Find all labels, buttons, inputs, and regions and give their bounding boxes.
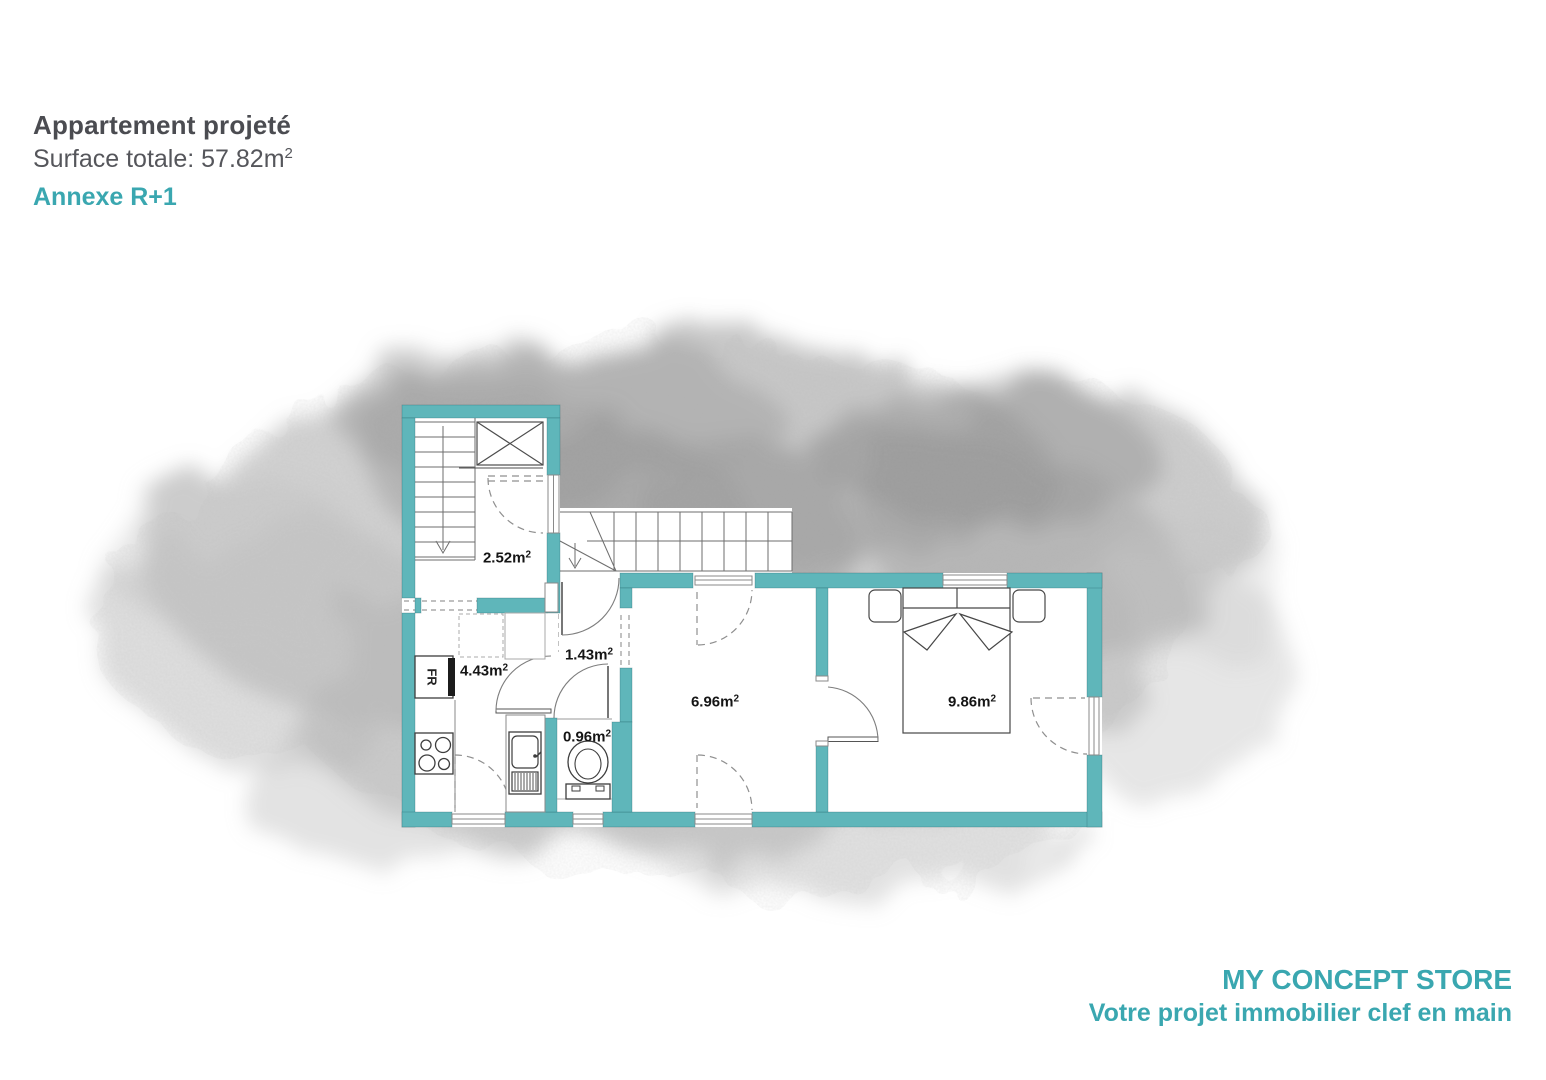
hall-casing-lower [545, 614, 558, 655]
wall-bottom-1 [402, 812, 452, 827]
wall-top-2 [755, 573, 943, 588]
fridge-door [448, 658, 455, 696]
bedroom-right-door-frame [1089, 697, 1099, 755]
fridge-label: FR [425, 668, 440, 686]
tower-wall-bottom-stub [415, 598, 421, 613]
wc-wall-left [545, 718, 557, 812]
wall-left [402, 613, 415, 827]
brand-name: MY CONCEPT STORE [1089, 962, 1512, 997]
wall-right-lower [1087, 755, 1102, 827]
fridge: FR [415, 656, 455, 698]
partition-door-cap-bottom [816, 741, 828, 746]
room-label-wc: 0.96m2 [563, 729, 611, 746]
kitchen-window [452, 814, 505, 824]
bedroom-window [943, 575, 1007, 585]
room-label-bedroom: 9.86m2 [948, 694, 996, 711]
room-top-doorway [695, 576, 752, 585]
sink-drainer [512, 772, 538, 791]
wall-bottom-3 [603, 812, 695, 827]
floor-plan-page: { "header": { "title": "Appartement proj… [0, 0, 1546, 1080]
surface-total: Surface totale: 57.82m2 [33, 142, 293, 180]
room-label-kitchen: 4.43m2 [460, 663, 508, 680]
wc-wall-right [612, 722, 632, 812]
tower-wall-bottom [477, 598, 547, 613]
wall-top-3 [1007, 573, 1102, 588]
plan-header: Appartement projeté Surface totale: 57.8… [33, 108, 293, 214]
toilet [566, 741, 610, 799]
partition-door-cap-top [816, 676, 828, 681]
kitchen-sink [506, 715, 545, 812]
partition-wall-upper [816, 588, 828, 676]
hall-wall-stub-lower [620, 668, 632, 722]
wall-right-upper [1087, 573, 1102, 697]
sink-basin [512, 736, 538, 768]
hall-casing-upper [545, 583, 558, 612]
partition-wall-lower [816, 746, 828, 812]
room-label-room: 6.96m2 [691, 694, 739, 711]
room-bottom-window [695, 814, 752, 824]
brand-footer: MY CONCEPT STORE Votre projet immobilier… [1089, 962, 1512, 1030]
tower-wall-left [402, 418, 415, 598]
wall-bottom-2 [505, 812, 573, 827]
stove [415, 733, 453, 774]
nightstand-left [869, 590, 901, 622]
wc-window [573, 814, 603, 824]
room-label-hall: 1.43m2 [565, 647, 613, 664]
counter-top [505, 613, 545, 659]
tower-wall-right-upper [547, 418, 560, 475]
wall-top-1 [620, 573, 693, 588]
wall-bottom-4 [752, 812, 1102, 827]
bed [903, 588, 1012, 733]
hall-wall-stub-upper [620, 588, 632, 608]
tower-wall-top [402, 405, 560, 418]
nightstand-right [1013, 590, 1045, 622]
page-title: Appartement projeté [33, 108, 293, 142]
room-label-landing: 2.52m2 [483, 550, 531, 567]
tower-door-frame [548, 475, 559, 533]
brand-tagline: Votre projet immobilier clef en main [1089, 997, 1512, 1030]
annex-label: Annexe R+1 [33, 180, 293, 214]
